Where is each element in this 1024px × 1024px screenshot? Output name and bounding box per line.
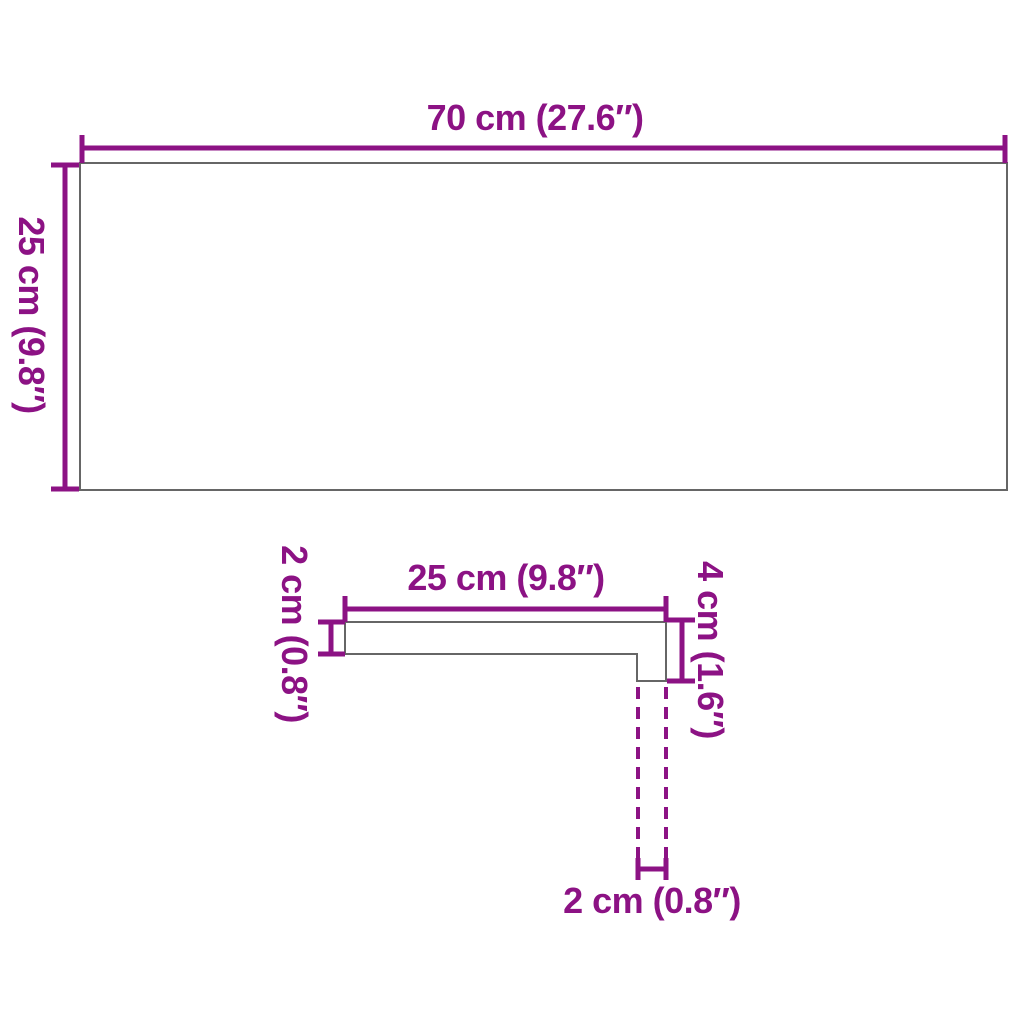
profile-view <box>318 596 695 881</box>
panel-outline <box>80 163 1007 490</box>
top-view-height-label: 25 cm (9.8″) <box>11 115 51 515</box>
top-view <box>51 135 1007 490</box>
profile-thickness-dimension-line <box>318 622 345 654</box>
top-view-width-label: 70 cm (27.6″) <box>335 98 735 138</box>
top-width-dimension-line <box>82 135 1005 163</box>
nose-extension-dashed-lines <box>638 687 666 881</box>
profile-outline <box>345 622 666 681</box>
profile-nose-depth-label: 2 cm (0.8″) <box>452 881 852 921</box>
nose-depth-dimension-line <box>638 858 666 880</box>
profile-thickness-label: 2 cm (0.8″) <box>274 434 314 834</box>
profile-edge-height-label: 4 cm (1.6″) <box>690 450 730 850</box>
profile-width-label: 25 cm (9.8″) <box>306 558 706 598</box>
dimension-diagram: 70 cm (27.6″) 25 cm (9.8″) 25 cm (9.8″) … <box>0 0 1024 1024</box>
left-height-dimension-line <box>51 165 79 489</box>
profile-width-dimension-line <box>345 596 666 622</box>
diagram-linework <box>0 0 1024 1024</box>
